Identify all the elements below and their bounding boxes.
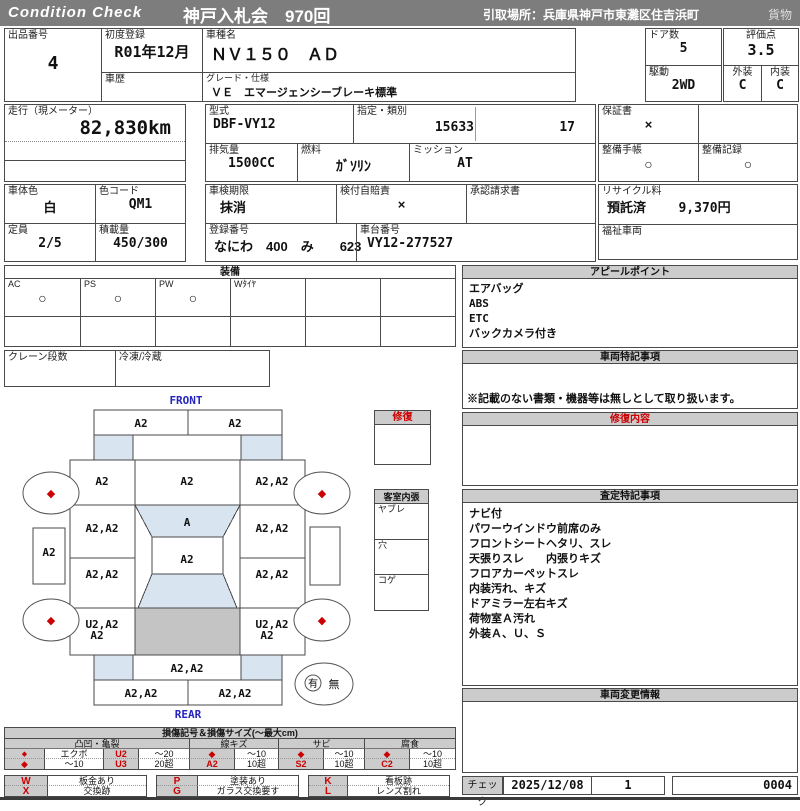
code-p: P (157, 776, 197, 786)
inspection-label: 車検期限 (206, 185, 336, 197)
repair-detail-title: 修復内容 (463, 413, 797, 426)
legend-code-u2: U2 (103, 749, 138, 759)
mileage-label: 走行（現メーター） (5, 105, 185, 117)
displacement-label: 排気量 (206, 144, 297, 156)
panel-rear-window (138, 574, 237, 608)
equip-cell-ac: AC ○ (5, 279, 80, 316)
exterior-value: C (724, 78, 761, 93)
legend-sym-scratch: ◆ (189, 749, 234, 759)
equip-cell-r2-5 (305, 316, 380, 346)
warranty-empty-cell (698, 105, 797, 143)
equip-cell-ps: PS ○ (80, 279, 155, 316)
color-code-value: QM1 (96, 197, 185, 212)
legend-group-scratch: 線キズ (189, 739, 278, 749)
damage-diamond-icon: ◆ (318, 488, 327, 500)
fuel-label: 燃料 (298, 144, 409, 156)
displacement-value: 1500CC (206, 156, 297, 171)
front-label: FRONT (169, 394, 202, 407)
assessment-line: パワーウインドウ前席のみ (463, 521, 797, 536)
panel-sill-right (310, 527, 340, 585)
mission-cell: ミッション AT (409, 143, 595, 181)
model-code-cell: 型式 DBF-VY12 (206, 105, 353, 143)
equipment-box: 装備 AC ○ PS ○ PW ○ Wﾀｲﾔ (4, 265, 456, 347)
model-name-value: ＮＶ１５０ ＡＤ (203, 41, 575, 65)
assessment-title: 査定特記事項 (463, 490, 797, 503)
mark-quarter-left-2: A2 (90, 629, 103, 642)
mark-sill-left: A2 (42, 546, 55, 559)
inspection-box: 車検期限 抹消 検付自賠責 × 承認請求書 登録番号 なにわ 400 み 623… (205, 184, 596, 262)
mark-door-front-left: A2,A2 (85, 522, 118, 535)
mark-door-front-right: A2,A2 (255, 522, 288, 535)
panel-door-rear-left (70, 558, 135, 608)
appeal-body: エアバッグ ABS ETC バックカメラ付き (463, 281, 797, 341)
mission-label: ミッション (410, 144, 595, 156)
capacity-label: 定員 (5, 224, 95, 236)
equipment-title: 装備 (5, 266, 455, 279)
equip-cell-r2-4 (230, 316, 305, 346)
panel-front-corner-right (241, 435, 282, 460)
warranty-box: 保証書 × 整備手帳 ○ 整備記録 ○ (598, 104, 798, 182)
exterior-label: 外装 (724, 66, 761, 78)
first-reg-label: 初度登録 (102, 29, 202, 41)
assessment-line: フロアカーペットスレ (463, 566, 797, 581)
mission-value: AT (410, 156, 520, 171)
body-color-label: 車体色 (5, 185, 95, 197)
inspection-value: 抹消 (206, 197, 336, 216)
damage-diamond-icon: ◆ (318, 615, 327, 627)
legend-group-corrosion: 腐食 (364, 739, 455, 749)
model-name-label: 車種名 (203, 29, 575, 41)
chassis-cell: 車台番号 VY12-277527 (356, 223, 595, 261)
damage-diamond-icon: ◆ (47, 615, 56, 627)
code-x-desc: 交換跡 (47, 786, 146, 796)
equip-cell-r2-6 (380, 316, 455, 346)
legend-size-c2: 10超 (409, 759, 455, 769)
warranty-cell: 保証書 × (599, 105, 698, 143)
equip-label: AC (5, 279, 80, 290)
mileage-value: 82,830km (5, 117, 185, 139)
assessment-line: 外装Ａ、Ｕ、Ｓ (463, 626, 797, 641)
exhibit-no-value: 4 (5, 53, 101, 74)
interior-cell: 内装 C (761, 65, 798, 101)
legend-box: 損傷記号＆損傷サイズ(〜最大cm) 凸凹・亀裂 線キズ サビ 腐食 ◆ エクボ … (4, 727, 456, 770)
car-diagram: FRONT A2 A2 A2 A2 A2,A2 A2,A2 A A2,A2 A2… (0, 392, 462, 724)
mark-fender-right: A2,A2 (255, 475, 288, 488)
interior-value: C (762, 78, 798, 93)
appeal-line: ABS (463, 296, 797, 311)
equip-label: PW (156, 279, 230, 290)
mark-fender-left: A2 (95, 475, 108, 488)
panel-rear-corner-left (94, 655, 133, 680)
maint-book-label: 整備手帳 (599, 144, 698, 156)
score-label: 評価点 (724, 29, 798, 41)
code-l-desc: レンズ割れ (347, 786, 449, 796)
assessment-line: 荷物室Ａ汚れ (463, 611, 797, 626)
color-capacity-box: 車体色 白 色コード QM1 定員 2/5 積載量 450/300 (4, 184, 186, 262)
legend-sym-rust: ◆ (278, 749, 323, 759)
legend-size-rust: 〜10 (323, 749, 364, 759)
assessment-line: ナビ付 (463, 506, 797, 521)
mark-roof: A2 (180, 553, 193, 566)
equip-cell-r2-2 (80, 316, 155, 346)
assessment-line: 内装汚れ、キズ (463, 581, 797, 596)
legend-sym-small-diamond: ◆ (5, 749, 44, 759)
reefer-cell: 冷凍/冷蔵 (115, 351, 269, 386)
doors-drive-box: ドア数 5 駆動 2WD (645, 28, 722, 102)
equip-label: PS (81, 279, 155, 290)
approval-label: 承認請求書 (467, 185, 595, 197)
equip-value: ○ (5, 290, 80, 306)
panel-cargo (135, 608, 240, 655)
reg-no-value: なにわ 400 み 623 (206, 236, 356, 255)
spare-tire-circle (295, 663, 353, 705)
mark-door-rear-right: A2,A2 (255, 568, 288, 581)
maint-record-label: 整備記録 (699, 144, 797, 156)
insurance-cell: 検付自賠責 × (336, 185, 466, 223)
mark-front-bumper-right: A2 (228, 417, 241, 430)
code-k-desc: 看板跡 (347, 776, 449, 786)
drive-value: 2WD (646, 78, 721, 93)
sheet-no: 0004 (673, 777, 797, 794)
code-w-desc: 板金あり (47, 776, 146, 786)
grade-cell: グレード・仕様 ＶＥ エマージェンシーブレーキ標準 (203, 72, 575, 101)
drive-label: 駆動 (646, 66, 721, 78)
recycle-label: リサイクル料 (599, 185, 797, 197)
history-label: 車歴 (102, 73, 202, 85)
appeal-line: エアバッグ (463, 281, 797, 296)
pickup-location: 引取場所：兵庫県神戸市東灘区住吉浜町 (483, 6, 699, 23)
assessment-line: 天張りスレ 内張りキズ (463, 551, 797, 566)
doors-cell: ドア数 5 (646, 29, 721, 65)
check-box: 2025/12/08 1 (503, 776, 665, 795)
assessment-panel: 査定特記事項 ナビ付 パワーウインドウ前席のみ フロントシートヘタリ、スレ 天張… (462, 489, 798, 686)
model-code-value: DBF-VY12 (206, 117, 353, 132)
recycle-fee: 9,370円 (650, 201, 730, 216)
fuel-cell: 燃料 ｶﾞｿﾘﾝ (297, 143, 409, 181)
title-bar: Condition Check 神戸入札会 970回 引取場所：兵庫県神戸市東灘… (0, 0, 800, 26)
legend-code-s2: S2 (278, 759, 323, 769)
equip-value: ○ (81, 290, 155, 306)
rear-label: REAR (175, 708, 202, 721)
assessment-body: ナビ付 パワーウインドウ前席のみ フロントシートヘタリ、スレ 天張りスレ 内張り… (463, 506, 797, 641)
grade-label: グレード・仕様 (203, 73, 575, 84)
brand-logo: Condition Check (8, 4, 142, 21)
code-g-desc: ガラス交換要す (197, 786, 298, 796)
legend-group-rust: サビ (278, 739, 364, 749)
model-name-box: 車種名 ＮＶ１５０ ＡＤ グレード・仕様 ＶＥ エマージェンシーブレーキ標準 (202, 28, 576, 102)
legend-size-scratch: 〜10 (234, 749, 278, 759)
load-value: 450/300 (96, 236, 185, 251)
legend-size-a2: 10超 (234, 759, 278, 769)
class-cell: 指定・類別 15633 17 (353, 105, 595, 143)
auction-sheet: { "header": { "brand": "Condition Check"… (0, 0, 800, 800)
mark-hood: A2 (180, 475, 193, 488)
inspection-cell: 車検期限 抹消 (206, 185, 336, 223)
first-reg-box: 初度登録 R01年12月 車歴 (101, 28, 203, 102)
crane-label: クレーン段数 (5, 351, 115, 363)
history-value (102, 85, 202, 86)
vehicle-notes-footer: ※記載のない書類・機器等は無しとして取り扱います。 (467, 390, 741, 406)
sheet-no-box: 0004 (672, 776, 798, 795)
appeal-line: バックカメラ付き (463, 326, 797, 341)
crane-reefer-box: クレーン段数 冷凍/冷蔵 (4, 350, 270, 387)
equip-cell-6 (380, 279, 455, 316)
equip-cell-r2-1 (5, 316, 80, 346)
maint-book-value: ○ (599, 156, 698, 172)
body-color-value: 白 (5, 197, 95, 216)
equip-label: Wﾀｲﾔ (231, 279, 305, 290)
class-no-value: 15633 (354, 120, 474, 135)
mark-windshield: A (184, 516, 191, 529)
chassis-value: VY12-277527 (357, 236, 595, 251)
legend-title: 損傷記号＆損傷サイズ(〜最大cm) (5, 728, 455, 739)
legend-size-s2: 10超 (323, 759, 364, 769)
vehicle-notes-title: 車両特記事項 (463, 351, 797, 364)
mark-door-rear-left: A2,A2 (85, 568, 118, 581)
body-color-cell: 車体色 白 (5, 185, 95, 223)
doors-label: ドア数 (646, 29, 721, 41)
equip-cell-r2-3 (155, 316, 230, 346)
welfare-cell: 福祉車両 (599, 224, 797, 259)
mileage-box: 走行（現メーター） 82,830km (4, 104, 186, 182)
code-w: W (5, 776, 47, 786)
fuel-value: ｶﾞｿﾘﾝ (298, 156, 409, 176)
score-value: 3.5 (724, 41, 798, 59)
recycle-status: 預託済 (599, 200, 646, 215)
repair-detail-panel: 修復内容 (462, 412, 798, 486)
legend-ekubo: エクボ (44, 749, 103, 759)
cargo-tag: 貨物 (768, 6, 792, 23)
legend-size-u2: 〜20 (138, 749, 189, 759)
spare-yes-label: 有 (308, 677, 318, 690)
recycle-cell: リサイクル料 預託済 9,370円 (599, 185, 797, 224)
reefer-label: 冷凍/冷蔵 (116, 351, 269, 363)
equip-cell-5 (305, 279, 380, 316)
legend-code-u3: U3 (103, 759, 138, 769)
legend-sym-diamond: ◆ (5, 759, 44, 769)
first-reg-value: R01年12月 (102, 41, 202, 62)
panel-rear-corner-right (241, 655, 282, 680)
recycle-box: リサイクル料 預託済 9,370円 福祉車両 (598, 184, 798, 260)
exhibit-no-box: 出品番号 4 (4, 28, 102, 102)
legend-size-u3: 20超 (138, 759, 189, 769)
reg-no-label: 登録番号 (206, 224, 356, 236)
code-l: L (309, 786, 347, 796)
warranty-label: 保証書 (599, 105, 698, 117)
model-name-cell: 車種名 ＮＶ１５０ ＡＤ (203, 29, 575, 72)
score-box: 評価点 3.5 外装 C 内装 C (723, 28, 799, 102)
maint-book-cell: 整備手帳 ○ (599, 143, 698, 181)
vehicle-notes-panel: 車両特記事項 ※記載のない書類・機器等は無しとして取り扱います。 (462, 350, 798, 409)
maint-record-value: ○ (699, 156, 797, 172)
code-table-wx: W 板金あり X 交換跡 (4, 775, 147, 797)
interior-label: 内装 (762, 66, 798, 78)
check-date: 2025/12/08 (504, 777, 591, 794)
load-cell: 積載量 450/300 (95, 223, 185, 261)
color-code-label: 色コード (96, 185, 185, 197)
panel-front-center (133, 435, 241, 460)
warranty-value: × (599, 117, 698, 132)
insurance-value: × (337, 197, 466, 212)
insurance-label: 検付自賠責 (337, 185, 466, 197)
load-label: 積載量 (96, 224, 185, 236)
equip-value: ○ (156, 290, 230, 306)
crane-cell: クレーン段数 (5, 351, 115, 386)
mark-front-bumper-left: A2 (134, 417, 147, 430)
mark-rear-panel: A2,A2 (170, 662, 203, 675)
legend-sym-corrosion: ◆ (364, 749, 409, 759)
assessment-line: フロントシートヘタリ、スレ (463, 536, 797, 551)
appeal-panel: アピールポイント エアバッグ ABS ETC バックカメラ付き (462, 265, 798, 348)
class-no2-value: 17 (475, 120, 575, 135)
equip-cell-pw: PW ○ (155, 279, 230, 316)
displacement-cell: 排気量 1500CC (206, 143, 297, 181)
panel-front-corner-left (94, 435, 133, 460)
change-info-title: 車両変更情報 (463, 689, 797, 702)
check-no: 1 (591, 777, 664, 794)
code-k: K (309, 776, 347, 786)
mark-quarter-right-2: A2 (260, 629, 273, 642)
check-label: チェック (462, 776, 503, 795)
code-table-kl: K 看板跡 L レンズ割れ (308, 775, 450, 797)
score-cell: 評価点 3.5 (724, 29, 798, 65)
doors-value: 5 (646, 41, 721, 56)
code-x: X (5, 786, 47, 796)
auction-title: 神戸入札会 970回 (183, 2, 330, 27)
code-p-desc: 塗装あり (197, 776, 298, 786)
mileage-divider-solid (5, 160, 185, 161)
capacity-cell: 定員 2/5 (5, 223, 95, 261)
color-code-cell: 色コード QM1 (95, 185, 185, 223)
legend-group-dent: 凸凹・亀裂 (5, 739, 189, 749)
spare-no-label: 無 (329, 677, 340, 691)
equip-cell-wtire: Wﾀｲﾔ (230, 279, 305, 316)
history-cell: 車歴 (102, 72, 202, 101)
drive-cell: 駆動 2WD (646, 65, 721, 101)
model-code-label: 型式 (206, 105, 353, 117)
maint-record-cell: 整備記録 ○ (698, 143, 797, 181)
chassis-label: 車台番号 (357, 224, 595, 236)
appeal-title: アピールポイント (463, 266, 797, 279)
mark-rear-bumper-left: A2,A2 (124, 687, 157, 700)
capacity-value: 2/5 (5, 236, 95, 251)
legend-size-diamond: 〜10 (44, 759, 103, 769)
code-g: G (157, 786, 197, 796)
mark-rear-bumper-right: A2,A2 (218, 687, 251, 700)
legend-size-corrosion: 〜10 (409, 749, 455, 759)
exterior-cell: 外装 C (724, 65, 761, 101)
legend-code-a2: A2 (189, 759, 234, 769)
assessment-line: ドアミラー左右キズ (463, 596, 797, 611)
change-info-panel: 車両変更情報 (462, 688, 798, 773)
reg-no-cell: 登録番号 なにわ 400 み 623 (206, 223, 356, 261)
damage-diamond-icon: ◆ (47, 488, 56, 500)
welfare-label: 福祉車両 (599, 225, 797, 237)
grade-value: ＶＥ エマージェンシーブレーキ標準 (203, 84, 575, 100)
exhibit-no-label: 出品番号 (5, 29, 101, 41)
legend-code-c2: C2 (364, 759, 409, 769)
approval-cell: 承認請求書 (466, 185, 595, 223)
code-table-pg: P 塗装あり G ガラス交換要す (156, 775, 299, 797)
mileage-divider-dotted (5, 141, 185, 142)
panel-door-rear-right (240, 558, 305, 608)
first-reg-cell: 初度登録 R01年12月 (102, 29, 202, 72)
model-code-box: 型式 DBF-VY12 指定・類別 15633 17 排気量 1500CC 燃料… (205, 104, 596, 182)
appeal-line: ETC (463, 311, 797, 326)
